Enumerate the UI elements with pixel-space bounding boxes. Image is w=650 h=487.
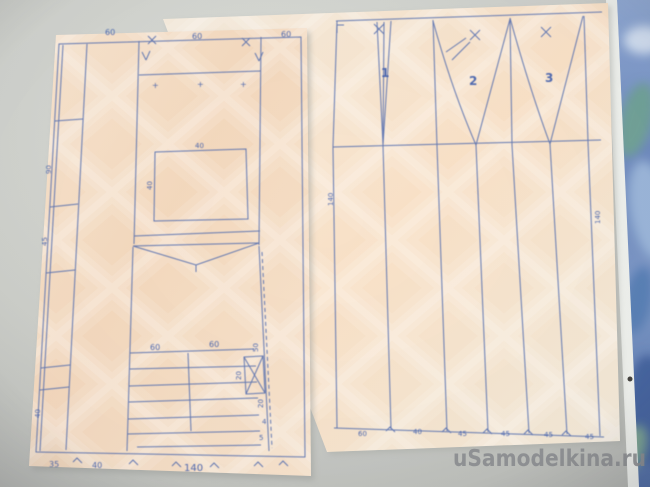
photo-scene: 1 2 3 140 140 60 40 45 45 45 45 [0, 0, 650, 487]
photo-vignette [0, 0, 650, 487]
